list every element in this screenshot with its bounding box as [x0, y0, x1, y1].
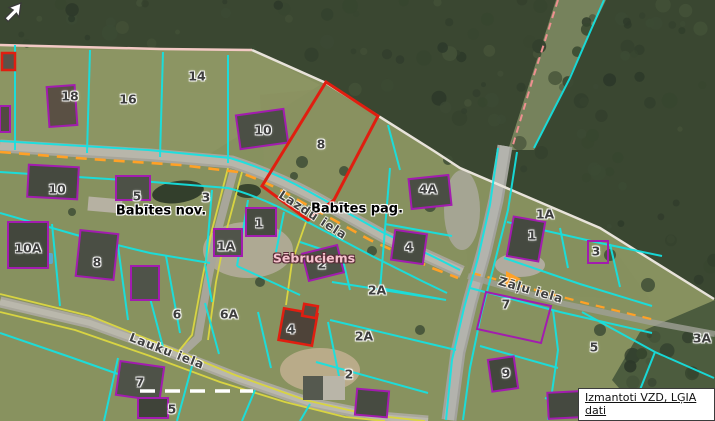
- aerial-map-layer: [0, 0, 715, 421]
- ne-arrow-cursor-icon: [0, 0, 24, 24]
- attribution-link[interactable]: Izmantoti VZD, LĢIA dati: [578, 388, 715, 421]
- attribution-text: Izmantoti VZD, LĢIA dati: [585, 391, 696, 417]
- map-canvas[interactable]: 18 16 14 10 8 10 5 3 4A 1A 10A 8 1 1A 2 …: [0, 0, 715, 421]
- building-roof: [303, 376, 323, 400]
